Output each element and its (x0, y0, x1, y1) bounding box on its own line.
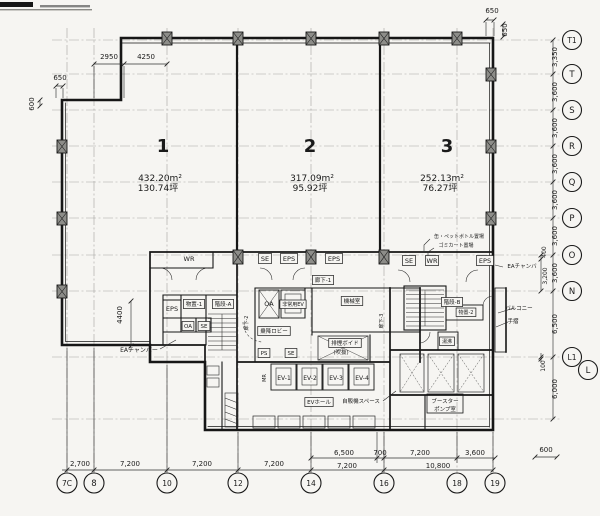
dim-label: 650 (53, 74, 66, 82)
room-label: SE (288, 351, 295, 357)
grid-bubble-label: 19 (490, 479, 500, 488)
column (306, 250, 316, 264)
room-label: ゴミカート置場 (438, 242, 473, 249)
column (57, 285, 67, 298)
grid-bubble-label: N (569, 287, 575, 297)
room-label: 非常用EV (282, 301, 304, 308)
dim-label: 3,600 (551, 263, 559, 283)
dim-label: 650 (485, 7, 498, 15)
dim-label: 3,600 (551, 226, 559, 246)
room-label: EAチャンバ (507, 263, 537, 270)
room-label: EV-2 (303, 375, 317, 382)
drawing-sheet: 1432.20m²130.74坪2317.09m²95.92坪3252.13m²… (0, 0, 600, 516)
dim-label: 3,350 (551, 47, 559, 67)
room-label: 廊下-3 (378, 314, 385, 329)
grid-bubble-label: L1 (568, 353, 577, 362)
room-label: MR (262, 374, 268, 382)
dim-label: 3,600 (551, 190, 559, 210)
dim-label: 7,200 (337, 462, 357, 470)
dim-label: 700 (373, 449, 386, 457)
dim-label: 6,000 (551, 379, 559, 399)
room-label: 缶・ペットボトル置場 (434, 233, 484, 240)
room-label: 階段-B (444, 298, 461, 306)
paper-background (0, 0, 600, 516)
room-label: SE (261, 255, 269, 263)
dim-label: 7,200 (410, 449, 430, 457)
column (379, 32, 389, 45)
dim-label: 10,800 (426, 462, 451, 470)
grid-bubble-label: 10 (162, 479, 172, 488)
zone-number: 2 (304, 136, 317, 157)
room-label: WR (184, 255, 195, 263)
grid-bubble-label: T1 (566, 36, 577, 45)
grid-bubble-label: 16 (379, 479, 389, 488)
column (57, 212, 67, 225)
room-label: OA (264, 300, 274, 308)
grid-bubble-label: 14 (306, 479, 316, 488)
room-label: SE (201, 324, 208, 330)
dim-label: 4250 (137, 53, 155, 61)
zone-area-tsubo: 130.74坪 (138, 183, 179, 194)
room-label: WR (427, 257, 438, 265)
grid-bubble-label: S (569, 106, 574, 116)
room-label: 廊下-2 (243, 316, 250, 331)
room-label: バルコニー (505, 305, 532, 312)
column (452, 32, 462, 45)
room-label: EPS (328, 255, 340, 263)
room-label: EPS (283, 255, 295, 263)
dim-label: 2,700 (70, 460, 90, 468)
grid-bubble-label: O (569, 251, 576, 261)
dim-label: 4400 (116, 306, 124, 324)
zone-area-m2: 432.20m² (138, 174, 182, 184)
dim-label: 600 (539, 446, 552, 454)
zone-area-m2: 317.09m² (290, 174, 334, 184)
zone-number: 1 (157, 136, 170, 157)
grid-bubble-label: L (586, 366, 591, 376)
dim-label: 2950 (100, 53, 118, 61)
column (486, 212, 496, 225)
room-label: 物置-2 (459, 309, 474, 316)
grid-bubble-label: T (568, 70, 575, 80)
dim-label: 6,500 (334, 449, 354, 457)
grid-bubble-label: 8 (91, 479, 96, 489)
column (306, 32, 316, 45)
dim-label: 3,600 (551, 118, 559, 138)
zone-area-m2: 252.13m² (420, 174, 464, 184)
room-label: 階段-A (215, 300, 232, 308)
dim-label: 3,200 (542, 267, 549, 284)
room-label: EPS (166, 305, 178, 313)
room-label: EVホール (307, 399, 331, 406)
dim-label: 7,200 (264, 460, 284, 468)
column (233, 32, 243, 45)
grid-bubble-label: P (569, 214, 574, 224)
dim-label: 6,500 (551, 314, 559, 334)
column (57, 140, 67, 153)
room-label: 物置-1 (186, 300, 202, 308)
room-label: EV-4 (355, 375, 369, 382)
grid-bubble-label: 12 (233, 479, 243, 488)
room-label: ブースター (431, 397, 458, 405)
room-label: SE (405, 257, 413, 265)
room-label: 機械室 (344, 297, 361, 305)
room-label: PS (261, 351, 268, 357)
grid-bubble-label: 7C (62, 479, 72, 488)
room-label: EAチャンバー (120, 347, 158, 354)
room-label: 自販機スペース (342, 397, 380, 405)
column (162, 32, 172, 45)
floor-plan: 1432.20m²130.74坪2317.09m²95.92坪3252.13m²… (0, 0, 600, 516)
grid-bubble-label: R (569, 142, 575, 152)
dim-label: 3,600 (465, 449, 485, 457)
grid-bubble-label: Q (569, 178, 576, 188)
room-label: EV-1 (277, 375, 291, 382)
room-label: 手摺 (507, 317, 519, 325)
dim-label: 600 (28, 97, 36, 110)
room-label: ポンプ室 (434, 405, 456, 413)
dim-label: 3,600 (551, 154, 559, 174)
grid-bubble-label: 18 (452, 479, 462, 488)
dim-label: 7,200 (192, 460, 212, 468)
dim-label: 650 (501, 23, 509, 36)
column (379, 250, 389, 264)
dim-label: 7,200 (120, 460, 140, 468)
dim-label: 3,600 (551, 82, 559, 102)
dim-label: 400 (541, 246, 548, 258)
zone-area-tsubo: 95.92坪 (293, 183, 328, 194)
room-label: 排煙ボイド (331, 339, 359, 347)
zone-area-tsubo: 76.27坪 (423, 183, 458, 194)
room-label: 湯沸 (442, 338, 452, 345)
room-label: (吹抜) (333, 348, 348, 356)
column (486, 140, 496, 153)
dim-label: 100 (540, 360, 547, 372)
room-label: 廊下-1 (315, 276, 331, 284)
column (486, 68, 496, 81)
zone-number: 3 (441, 136, 454, 157)
column (233, 250, 243, 264)
room-label: EV-3 (329, 375, 343, 382)
room-label: EPS (479, 257, 491, 265)
room-label: OA (184, 324, 192, 330)
room-label: 乗降ロビー (260, 327, 288, 335)
